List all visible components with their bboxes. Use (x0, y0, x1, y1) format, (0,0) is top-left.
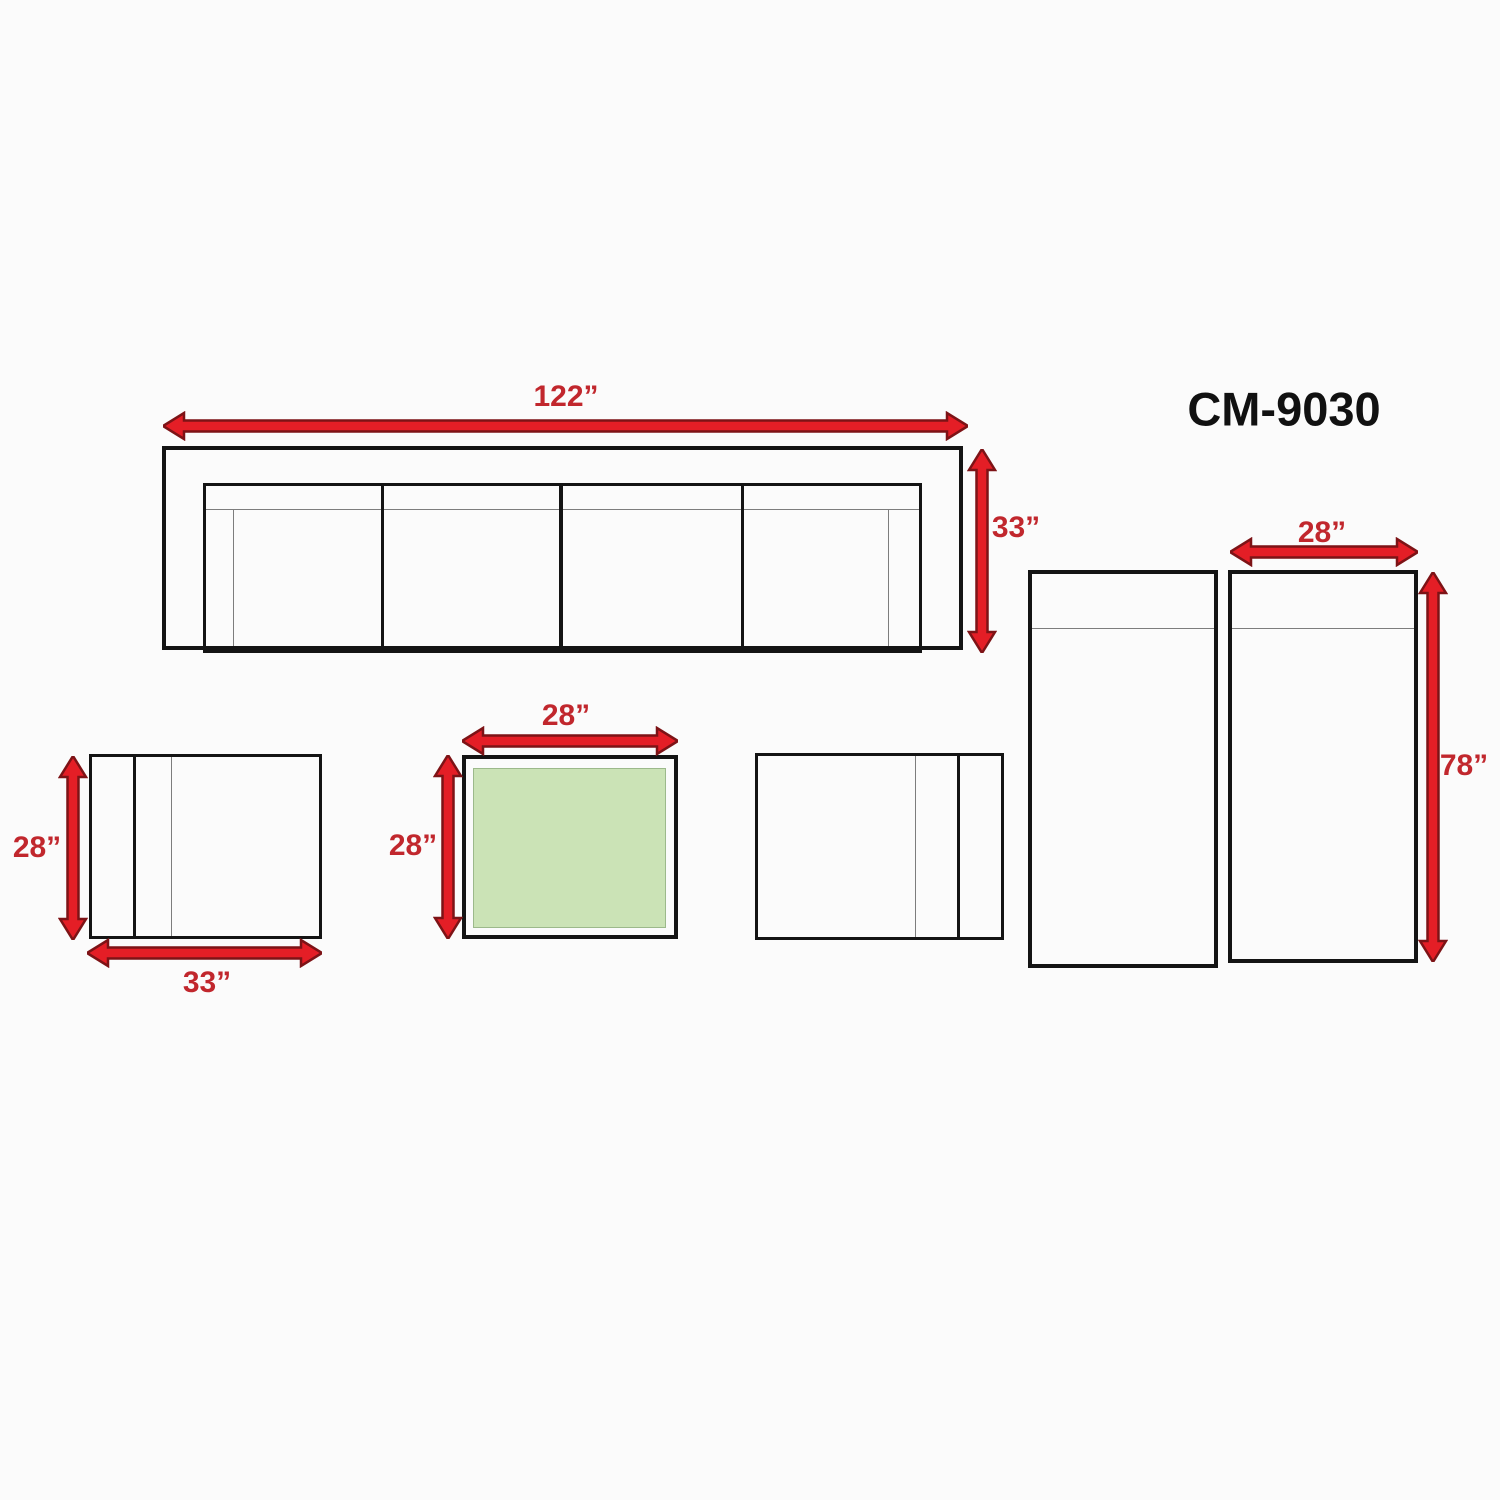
diagram-canvas: CM-9030 122” 33” 28” 78” 28” 33” 28” 28” (0, 0, 1500, 1500)
sofa-seat-2 (381, 483, 562, 653)
club-chair-depth-label: 28” (13, 831, 61, 865)
coffee-table-depth-label: 28” (389, 829, 437, 863)
side-chair-seat-outline (755, 753, 960, 940)
sofa-seat-3 (560, 483, 744, 653)
club-chair-arm-outline (89, 754, 136, 939)
product-code-label: CM-9030 (1187, 382, 1380, 437)
coffee-table-depth-arrow (433, 755, 463, 939)
sofa-depth-arrow (967, 449, 997, 653)
sofa-width-label: 122” (533, 380, 598, 414)
coffee-table-glass-top (473, 768, 666, 928)
club-chair-depth-arrow (58, 756, 88, 940)
lounge-left-outline (1028, 570, 1218, 968)
lounge-length-label: 78” (1440, 749, 1488, 783)
lounge-width-label: 28” (1298, 516, 1346, 550)
club-chair-seat-outline (133, 754, 322, 939)
sofa-depth-label: 33” (992, 511, 1040, 545)
coffee-table-width-label: 28” (542, 699, 590, 733)
side-chair-arm-outline (957, 753, 1004, 940)
sofa-seat-1 (203, 483, 384, 653)
club-chair-width-arrow (87, 938, 322, 968)
lounge-right-outline (1228, 570, 1418, 963)
sofa-width-arrow (163, 411, 968, 441)
sofa-seat-4 (741, 483, 922, 653)
club-chair-width-label: 33” (183, 966, 231, 1000)
